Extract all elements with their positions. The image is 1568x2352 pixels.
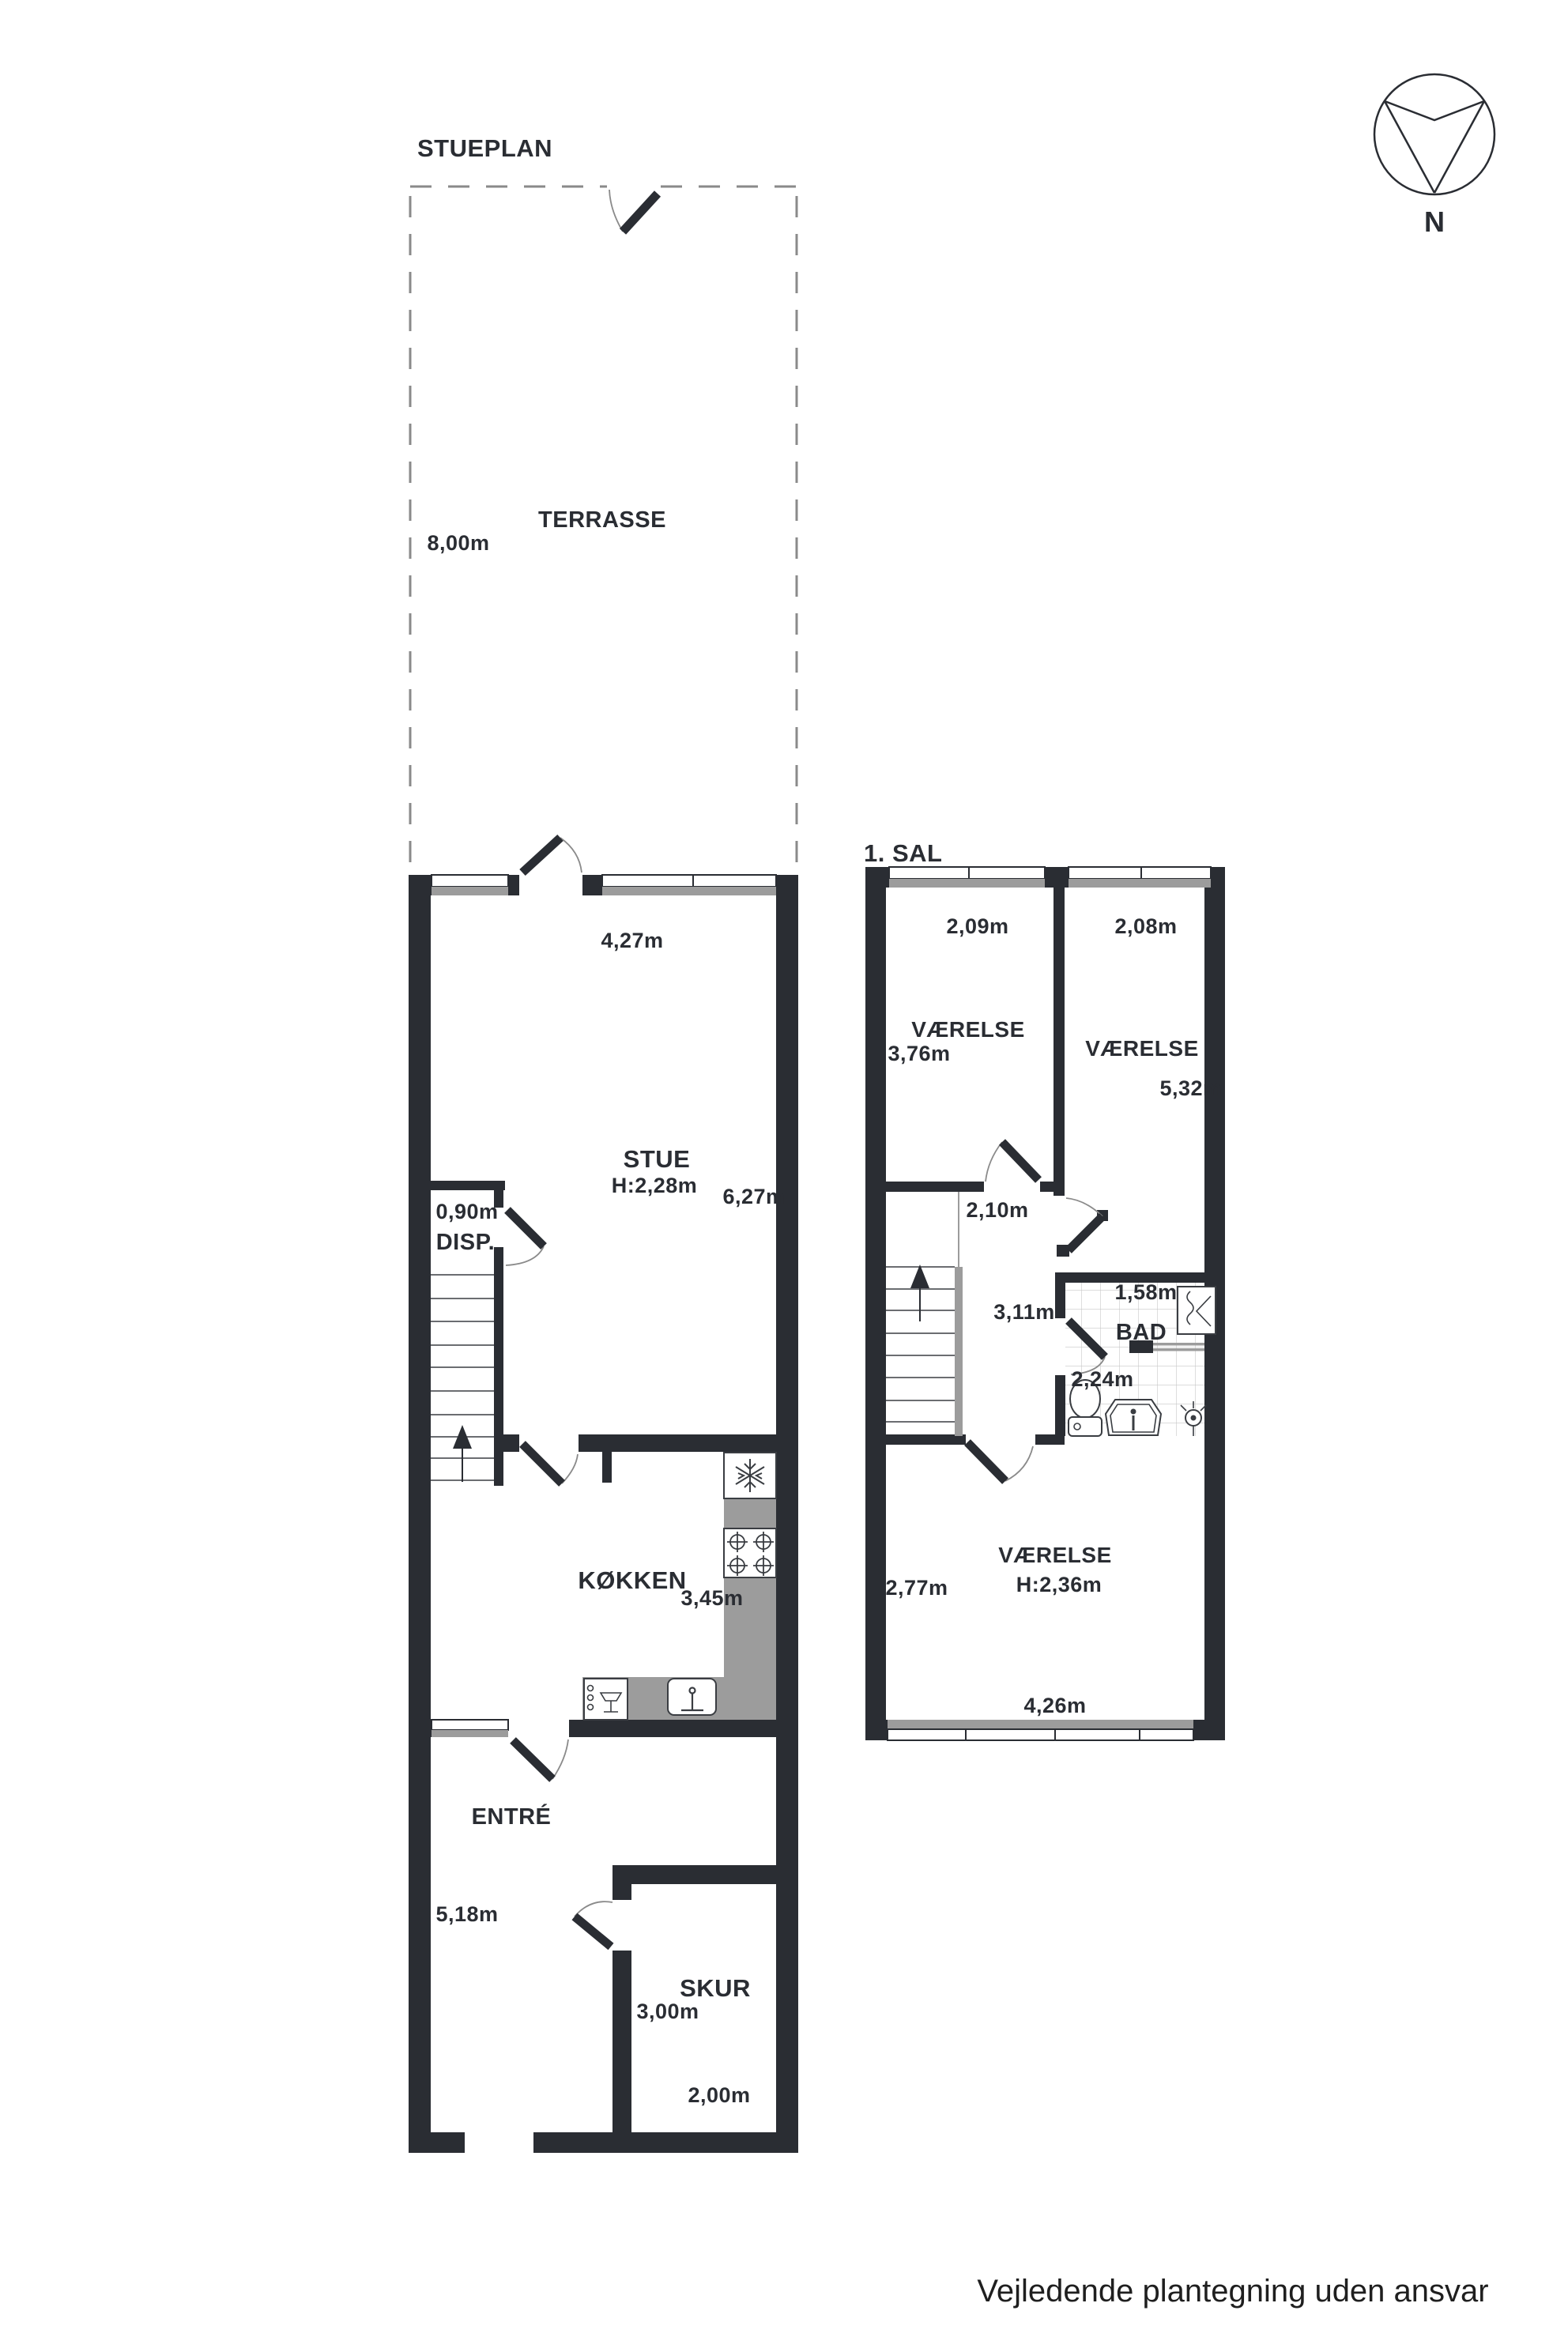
room-ne-length: 5,32m (1159, 1076, 1222, 1100)
dishwasher-icon (584, 1679, 628, 1720)
room-s-ceiling: H:2,36m (1016, 1573, 1102, 1596)
room-s-window (888, 1720, 1193, 1740)
room-nw-door (986, 1142, 1038, 1182)
kitchen-width: 3,45m (680, 1586, 743, 1610)
bath-label: BAD (1116, 1320, 1167, 1345)
staircase-first (886, 1192, 963, 1436)
floor-plan-drawing: N (0, 0, 1568, 2352)
stue-length: 6,27m (722, 1185, 785, 1208)
entre-window (432, 1720, 508, 1737)
room-ne-label: VÆRELSE (1085, 1036, 1199, 1061)
room-nw-label: VÆRELSE (911, 1017, 1025, 1042)
entre-label: ENTRÉ (472, 1803, 552, 1830)
stue-ceiling: H:2,28m (612, 1174, 698, 1197)
compass-label: N (1424, 205, 1445, 238)
stairs-up-arrow (910, 1265, 929, 1321)
kitchen-entre-door (513, 1739, 568, 1779)
sink-icon (668, 1679, 716, 1715)
fridge-icon (724, 1453, 776, 1498)
room-s-door (967, 1442, 1033, 1481)
landing-length: 3,11m (993, 1300, 1055, 1324)
landing-width: 2,10m (966, 1198, 1028, 1222)
stue-terrace-door (522, 838, 582, 873)
bath-depth: 2,24m (1071, 1367, 1133, 1391)
terrace-label: TERRASSE (538, 507, 666, 533)
labels: STUEPLAN 1. SAL TERRASSE 8,00m 4,27m STU… (417, 134, 1489, 2309)
shower-icon (1178, 1287, 1216, 1334)
shed-length: 3,00m (636, 2000, 699, 2023)
floor-plan-page: N (0, 0, 1568, 2352)
kitchen-label: KØKKEN (578, 1566, 686, 1594)
room-s-length: 4,26m (1023, 1694, 1086, 1717)
stue-window-left (432, 875, 508, 895)
washbasin-icon (1106, 1400, 1161, 1435)
room-s-label: VÆRELSE (998, 1543, 1112, 1567)
north-arrow-icon: N (1374, 74, 1494, 238)
stue-width: 4,27m (601, 929, 663, 952)
disp-width: 0,90m (435, 1200, 498, 1223)
room-nw-width: 2,09m (946, 914, 1008, 938)
room-ne-door (1066, 1198, 1102, 1250)
entre-length: 5,18m (435, 1902, 498, 1926)
room-ne-window (1069, 867, 1211, 888)
ground-floor-title: STUEPLAN (417, 134, 552, 162)
shed-label: SKUR (680, 1974, 751, 2002)
terrace-gate-door (609, 190, 658, 232)
bath-width: 1,58m (1114, 1280, 1177, 1304)
stue-label: STUE (624, 1145, 691, 1173)
staircase-ground (431, 1275, 494, 1482)
stue-window-right (602, 875, 776, 895)
disp-door (506, 1210, 544, 1265)
room-nw-window (889, 867, 1045, 888)
footer-disclaimer: Vejledende plantegning uden ansvar (977, 2274, 1488, 2309)
terrace-depth: 8,00m (427, 531, 489, 555)
room-s-width: 2,77m (885, 1576, 948, 1600)
disp-label: DISP. (436, 1230, 496, 1255)
shed-width: 2,00m (688, 2083, 750, 2107)
room-ne-width: 2,08m (1114, 914, 1177, 938)
room-nw-length: 3,76m (888, 1042, 950, 1065)
stairs-up-arrow (453, 1425, 472, 1482)
entre-shed-door (575, 1902, 612, 1947)
stove-icon (724, 1528, 776, 1577)
first-floor-title: 1. SAL (864, 839, 942, 867)
